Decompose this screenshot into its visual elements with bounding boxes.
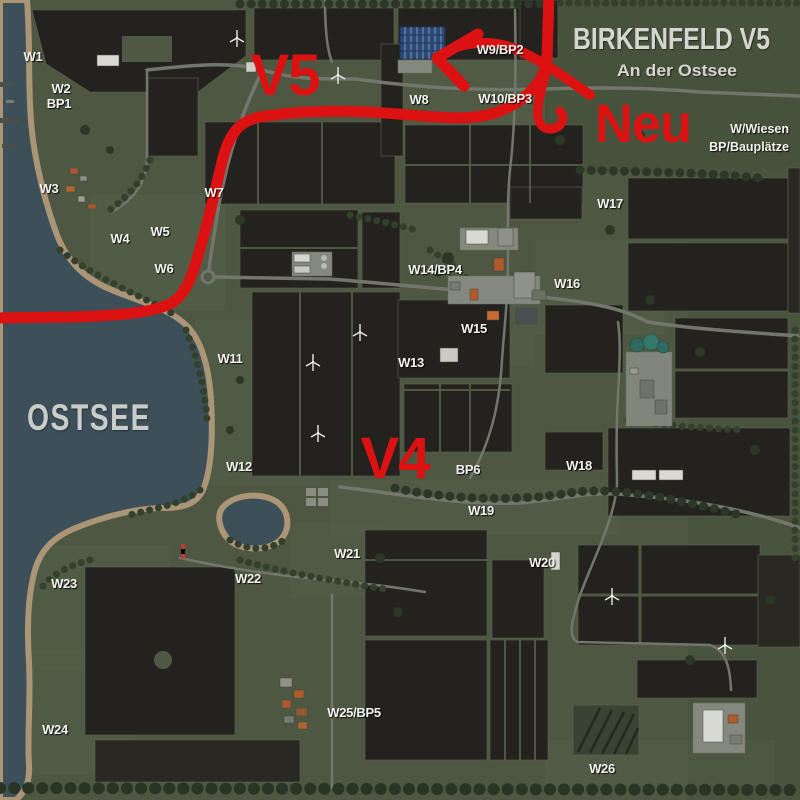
field-label: W2 <box>52 81 71 96</box>
sea-label: OSTSEE <box>27 397 151 438</box>
annotation-v4: V4 <box>361 426 431 491</box>
field-label: W22 <box>235 571 261 586</box>
map-screenshot: BIRKENFELD V5 An der Ostsee W/Wiesen BP/… <box>0 0 800 800</box>
field-label: W20 <box>529 555 555 570</box>
field-label: BP6 <box>456 462 480 477</box>
field-label: W7 <box>205 185 224 200</box>
field-label: W12 <box>226 459 252 474</box>
farm-southeast <box>693 703 745 753</box>
field-label: W10/BP3 <box>478 91 532 106</box>
field-label: W4 <box>111 231 131 246</box>
map-canvas: BIRKENFELD V5 An der Ostsee W/Wiesen BP/… <box>0 0 800 800</box>
field-label: W9/BP2 <box>477 42 524 57</box>
field-label: W5 <box>151 224 170 239</box>
field-label: W1 <box>24 49 43 64</box>
field-label: W16 <box>554 276 580 291</box>
field-label: W24 <box>42 722 69 737</box>
vineyard <box>573 705 639 755</box>
map-title: BIRKENFELD V5 <box>573 21 770 56</box>
field-label: W11 <box>217 351 242 366</box>
field-label: W18 <box>566 458 592 473</box>
field-label: W21 <box>334 546 360 561</box>
map-subtitle: An der Ostsee <box>617 61 737 80</box>
field-label: W14/BP4 <box>408 262 463 277</box>
field-label: W17 <box>597 196 623 211</box>
field-label: W23 <box>51 576 77 591</box>
field-label: W19 <box>468 503 494 518</box>
annotation-neu: Neu <box>595 94 691 154</box>
field-label: W3 <box>40 181 59 196</box>
field-label: W26 <box>589 761 615 776</box>
farm-west <box>292 252 332 276</box>
field-label: W8 <box>410 92 429 107</box>
legend-bauplaetze: BP/Bauplätze <box>709 140 789 154</box>
field-label: BP1 <box>47 96 71 111</box>
legend-wiesen: W/Wiesen <box>730 122 789 136</box>
weigh-station <box>440 348 458 362</box>
shed <box>97 55 119 66</box>
field-label: W15 <box>461 321 487 336</box>
lighthouse-icon <box>181 544 185 559</box>
field-label: W13 <box>398 355 424 370</box>
field-label: W6 <box>155 261 174 276</box>
annotation-v5: V5 <box>251 43 320 108</box>
field-label: W25/BP5 <box>327 705 381 720</box>
biogas-plant <box>626 334 672 426</box>
